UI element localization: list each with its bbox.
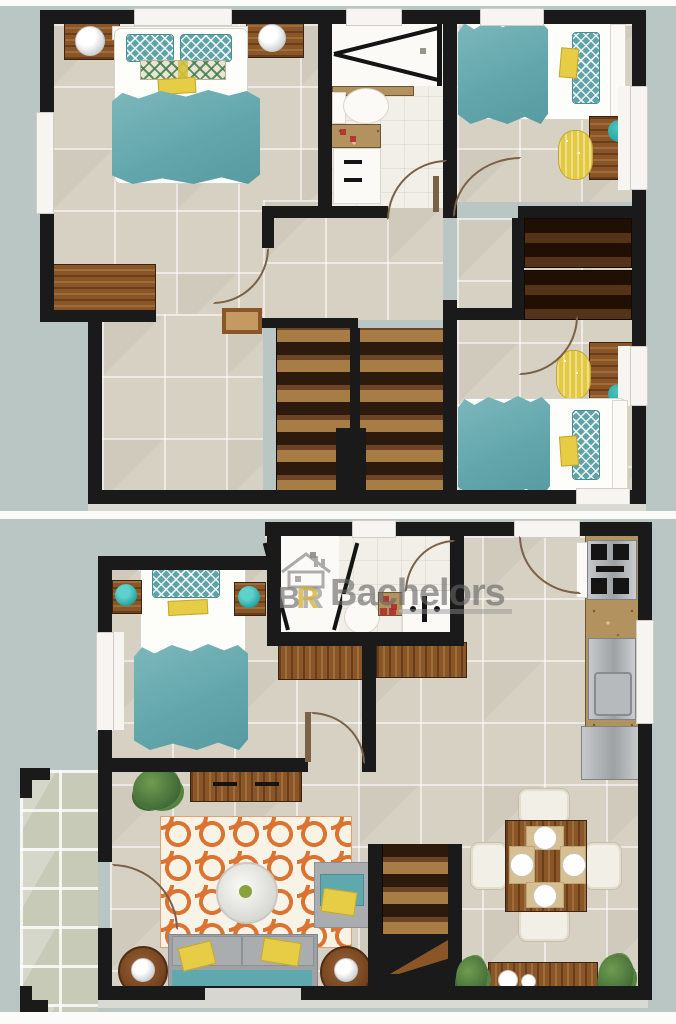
foundation-sill <box>98 1000 648 1008</box>
console-handle <box>213 782 237 786</box>
table-centerpiece <box>239 885 252 898</box>
wall <box>518 206 632 218</box>
table-lamp <box>131 958 155 982</box>
wall <box>88 490 646 504</box>
plate <box>533 884 557 908</box>
teal-lamp <box>238 586 260 608</box>
table-lamp <box>75 26 105 56</box>
bed-blanket <box>112 90 260 184</box>
stove-burner <box>613 578 629 594</box>
stove-burner <box>591 544 607 560</box>
dining-chair <box>584 842 622 890</box>
faucet <box>344 160 362 164</box>
plan-divider-band <box>0 511 676 519</box>
yellow-throw <box>559 435 579 466</box>
brand-initial-r: R <box>296 580 318 615</box>
stool <box>558 130 593 180</box>
teal-lamp <box>115 584 137 606</box>
yellow-throw <box>320 888 357 916</box>
window <box>636 620 654 724</box>
plate <box>562 853 586 877</box>
window-behind-sofa <box>205 988 301 1000</box>
cabinet <box>376 642 467 678</box>
wardrobe <box>524 270 632 320</box>
bathroom-door-leaf <box>433 176 439 212</box>
stove-control-bar <box>596 566 624 572</box>
watermark: BR Bachelors <box>276 548 586 620</box>
dining-chair <box>518 788 570 824</box>
brand-initials: BR <box>278 580 319 616</box>
bed-pillow <box>126 34 174 62</box>
wall <box>98 556 112 640</box>
wall <box>88 316 102 504</box>
bedroom1-extension-floor <box>102 314 263 492</box>
stool <box>556 350 591 400</box>
bed-blanket <box>134 644 248 750</box>
toilet-bowl <box>343 88 389 124</box>
brand-tagline-bar <box>400 609 512 614</box>
hall-table <box>222 308 262 334</box>
soap-dish <box>350 136 356 142</box>
stove-burner <box>591 578 607 594</box>
plate <box>510 853 534 877</box>
bedroom-door-leaf <box>305 712 311 762</box>
sofa-seat <box>172 970 312 987</box>
cabinet <box>278 642 364 680</box>
wall <box>98 556 270 570</box>
wall <box>98 758 308 772</box>
wall <box>443 300 457 504</box>
wall <box>638 522 652 1000</box>
wall <box>40 10 640 24</box>
refrigerator <box>581 726 641 780</box>
porch-floor <box>20 770 98 1012</box>
table-lamp <box>334 958 358 982</box>
bed-pillow <box>152 568 220 598</box>
wall <box>318 10 332 218</box>
wall <box>262 206 388 218</box>
yellow-throw <box>559 47 580 78</box>
porch-post <box>20 768 32 798</box>
console-handle <box>255 782 279 786</box>
wall <box>265 522 650 536</box>
bed-blanket <box>458 396 550 496</box>
shower-drain <box>420 48 426 54</box>
wall <box>262 318 358 328</box>
bed-pillow <box>180 34 232 62</box>
console-table <box>190 768 302 802</box>
window <box>630 86 648 190</box>
sink-basin <box>594 672 632 716</box>
window <box>346 8 402 26</box>
wall <box>362 632 376 772</box>
window <box>134 8 232 26</box>
window <box>36 112 54 214</box>
wardrobe <box>524 218 632 268</box>
window <box>96 632 114 732</box>
window <box>630 346 648 406</box>
dining-chair <box>470 842 508 890</box>
bed-blanket <box>458 20 548 124</box>
yellow-throw <box>168 599 209 616</box>
dresser <box>50 264 156 314</box>
bed-headboard <box>612 400 628 492</box>
porch-post <box>20 1000 48 1012</box>
stove-burner <box>613 544 629 560</box>
brand-tag-dot <box>389 608 396 615</box>
wall <box>98 986 648 1000</box>
faucet <box>344 178 362 182</box>
window <box>480 8 544 26</box>
soap-dish <box>340 129 346 135</box>
table-lamp <box>258 24 286 52</box>
vanity-sink <box>333 148 381 204</box>
wall <box>98 730 112 862</box>
staircase-treads-ground <box>382 844 451 934</box>
wall <box>262 206 274 248</box>
floor-plan-image: BR Bachelors <box>0 0 676 1024</box>
foundation-sill <box>88 504 646 511</box>
vanity-counter-edge <box>331 124 381 148</box>
wall <box>368 844 382 1000</box>
background-patch <box>0 519 265 557</box>
brand-tag-dot <box>380 608 387 615</box>
wall <box>512 218 524 320</box>
shower-frame <box>437 24 442 86</box>
wall <box>632 10 646 504</box>
wall <box>457 308 519 320</box>
plate <box>533 826 557 850</box>
window <box>352 520 396 538</box>
